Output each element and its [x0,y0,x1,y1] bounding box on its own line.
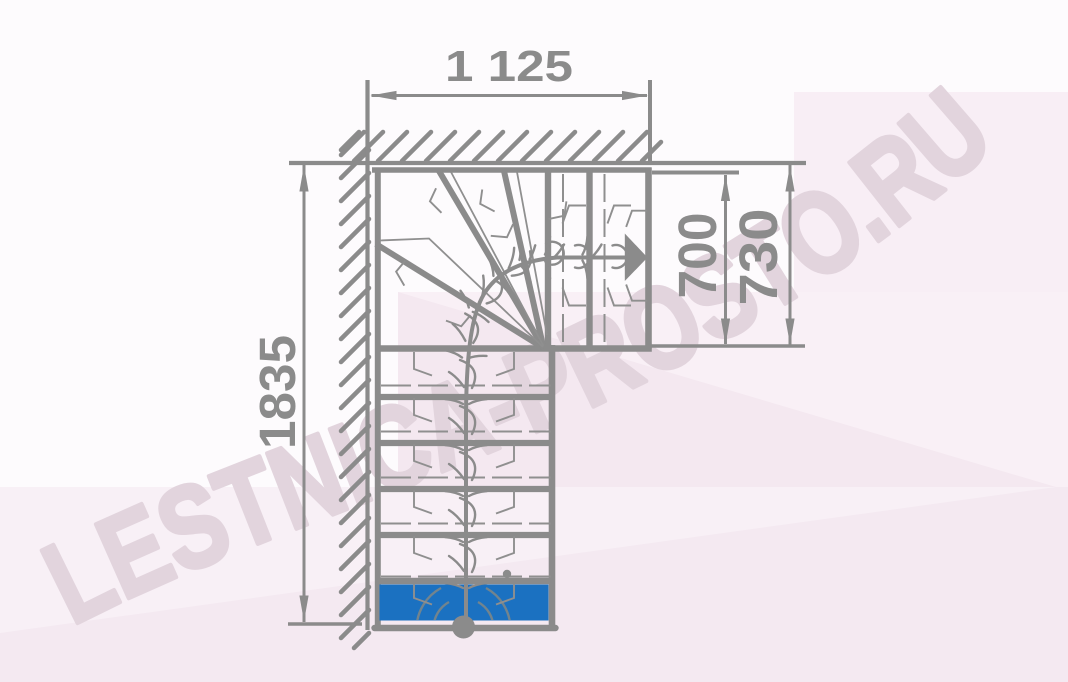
svg-text:1835: 1835 [249,335,306,449]
svg-text:700: 700 [668,213,728,299]
svg-text:1 125: 1 125 [445,42,573,91]
svg-text:730: 730 [729,209,789,306]
